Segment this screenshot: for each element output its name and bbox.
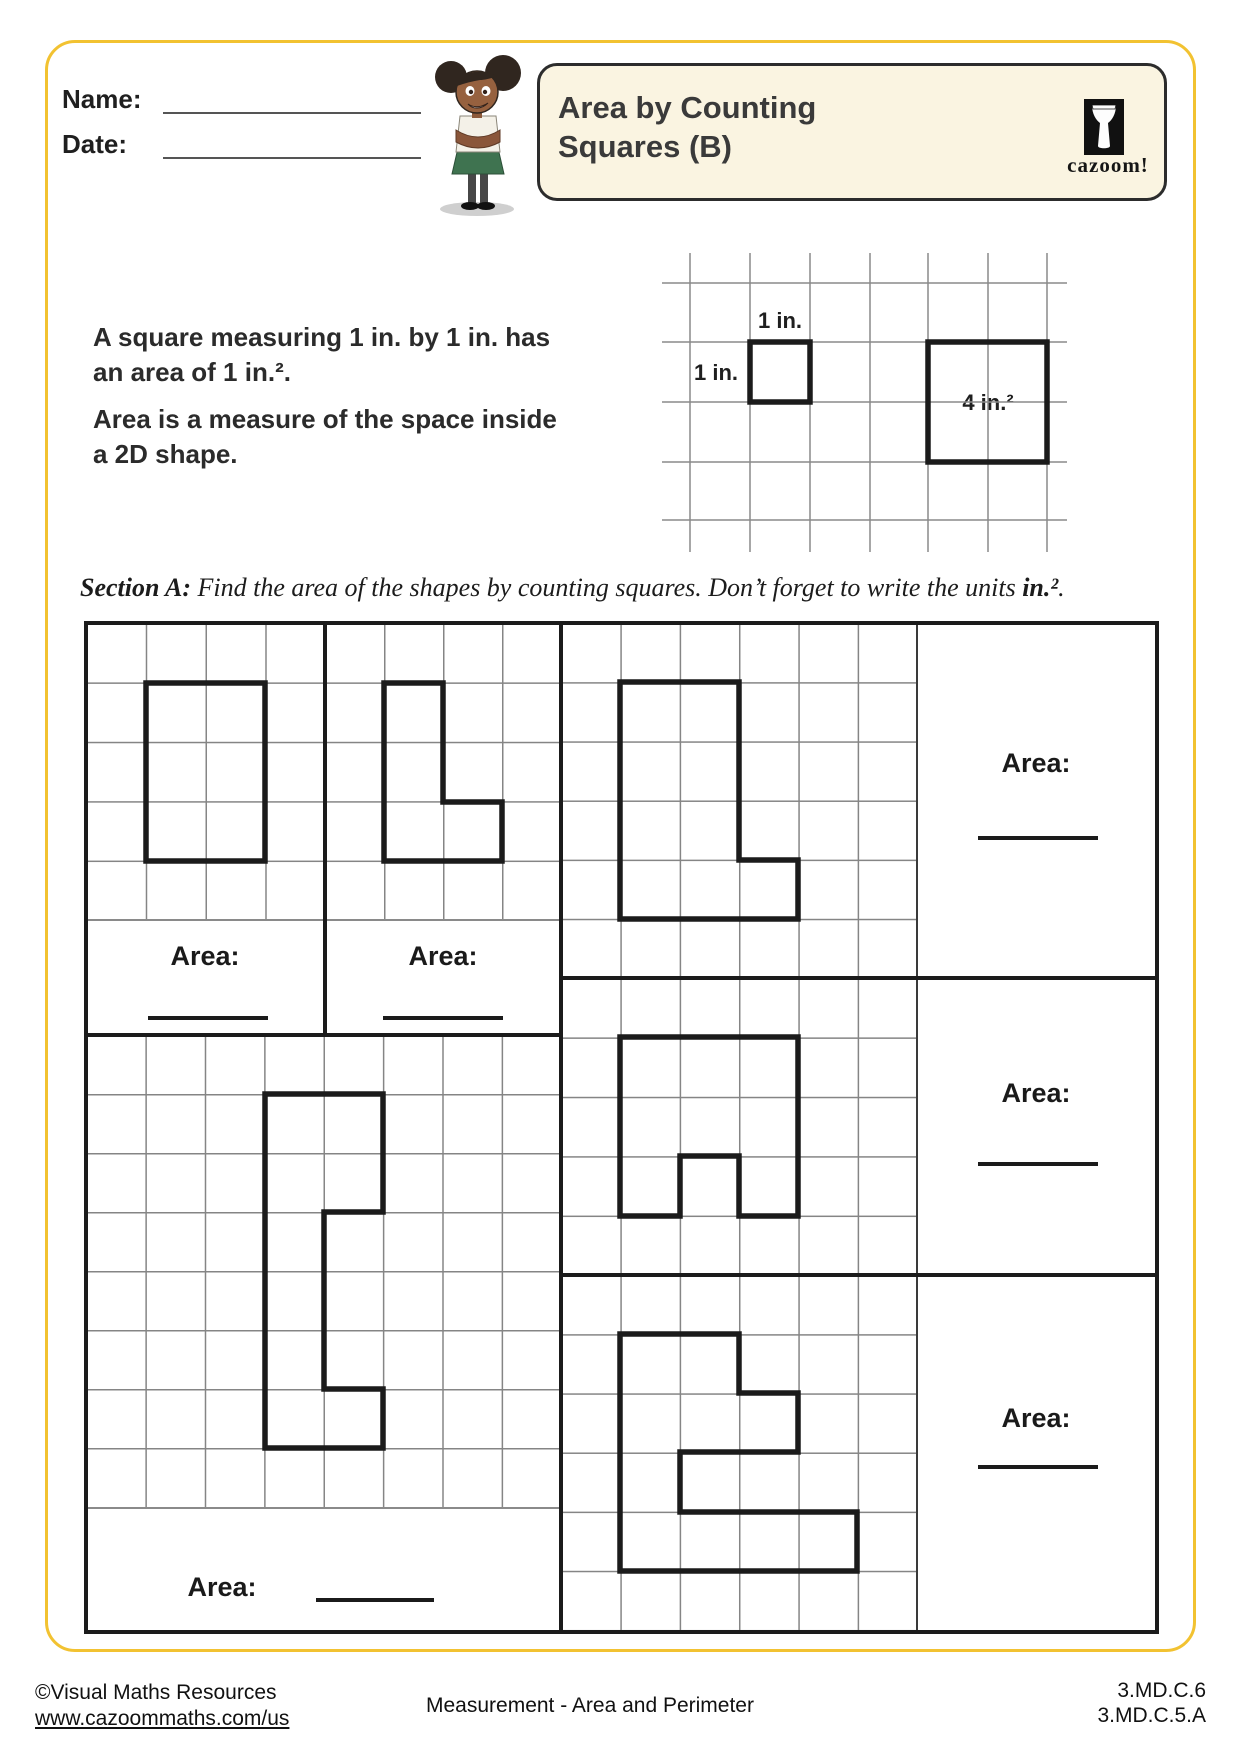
cazoom-drum-icon [1084,99,1124,155]
name-input-line [163,112,421,114]
date-label: Date: [62,129,127,160]
worksheet-page: Name: Date: Area by Counting Squares (B)… [0,0,1241,1754]
example-top-dimension-label: 1 in. [745,308,815,334]
answer-line-6 [316,1598,434,1602]
name-label: Name: [62,84,141,115]
intro-line-1: A square measuring 1 in. by 1 in. has [93,322,550,353]
section-a-period: . [1058,573,1065,602]
intro-line-2: an area of 1 in.². [93,357,291,388]
answer-line-4 [978,1162,1098,1166]
section-a-instruction: Find the area of the shapes by counting … [191,573,1022,602]
area-label-3: Area: [966,748,1106,779]
intro-line-3: Area is a measure of the space inside [93,404,557,435]
footer-copyright: ©Visual Maths Resources [35,1681,277,1705]
area-label-2: Area: [373,941,513,972]
footer-standard-1: 3.MD.C.6 [1006,1679,1206,1703]
intro-line-4: a 2D shape. [93,439,238,470]
area-label-5: Area: [966,1403,1106,1434]
section-a-units: in.² [1022,573,1058,602]
example-left-dimension-label: 1 in. [660,360,738,386]
student-character-illustration [420,50,535,218]
footer-url-link[interactable]: www.cazoommaths.com/us [35,1707,289,1731]
answer-line-5 [978,1465,1098,1469]
answer-line-1 [148,1016,268,1020]
section-a-heading: Section A: Find the area of the shapes b… [80,573,1160,603]
area-label-1: Area: [135,941,275,972]
cazoom-logo-text: cazoom! [1058,153,1158,178]
example-area-value-label: 4 in.² [937,390,1039,416]
footer-standard-2: 3.MD.C.5.A [1006,1704,1206,1728]
area-label-4: Area: [966,1078,1106,1109]
answer-line-2 [383,1016,503,1020]
date-input-line [163,157,421,159]
worksheet-title-line2: Squares (B) [558,127,732,166]
answer-line-3 [978,836,1098,840]
footer-center-text: Measurement - Area and Perimeter [380,1694,800,1718]
area-label-6: Area: [162,1572,282,1603]
section-a-label: Section A: [80,573,191,602]
worksheet-title-line1: Area by Counting [558,88,816,127]
